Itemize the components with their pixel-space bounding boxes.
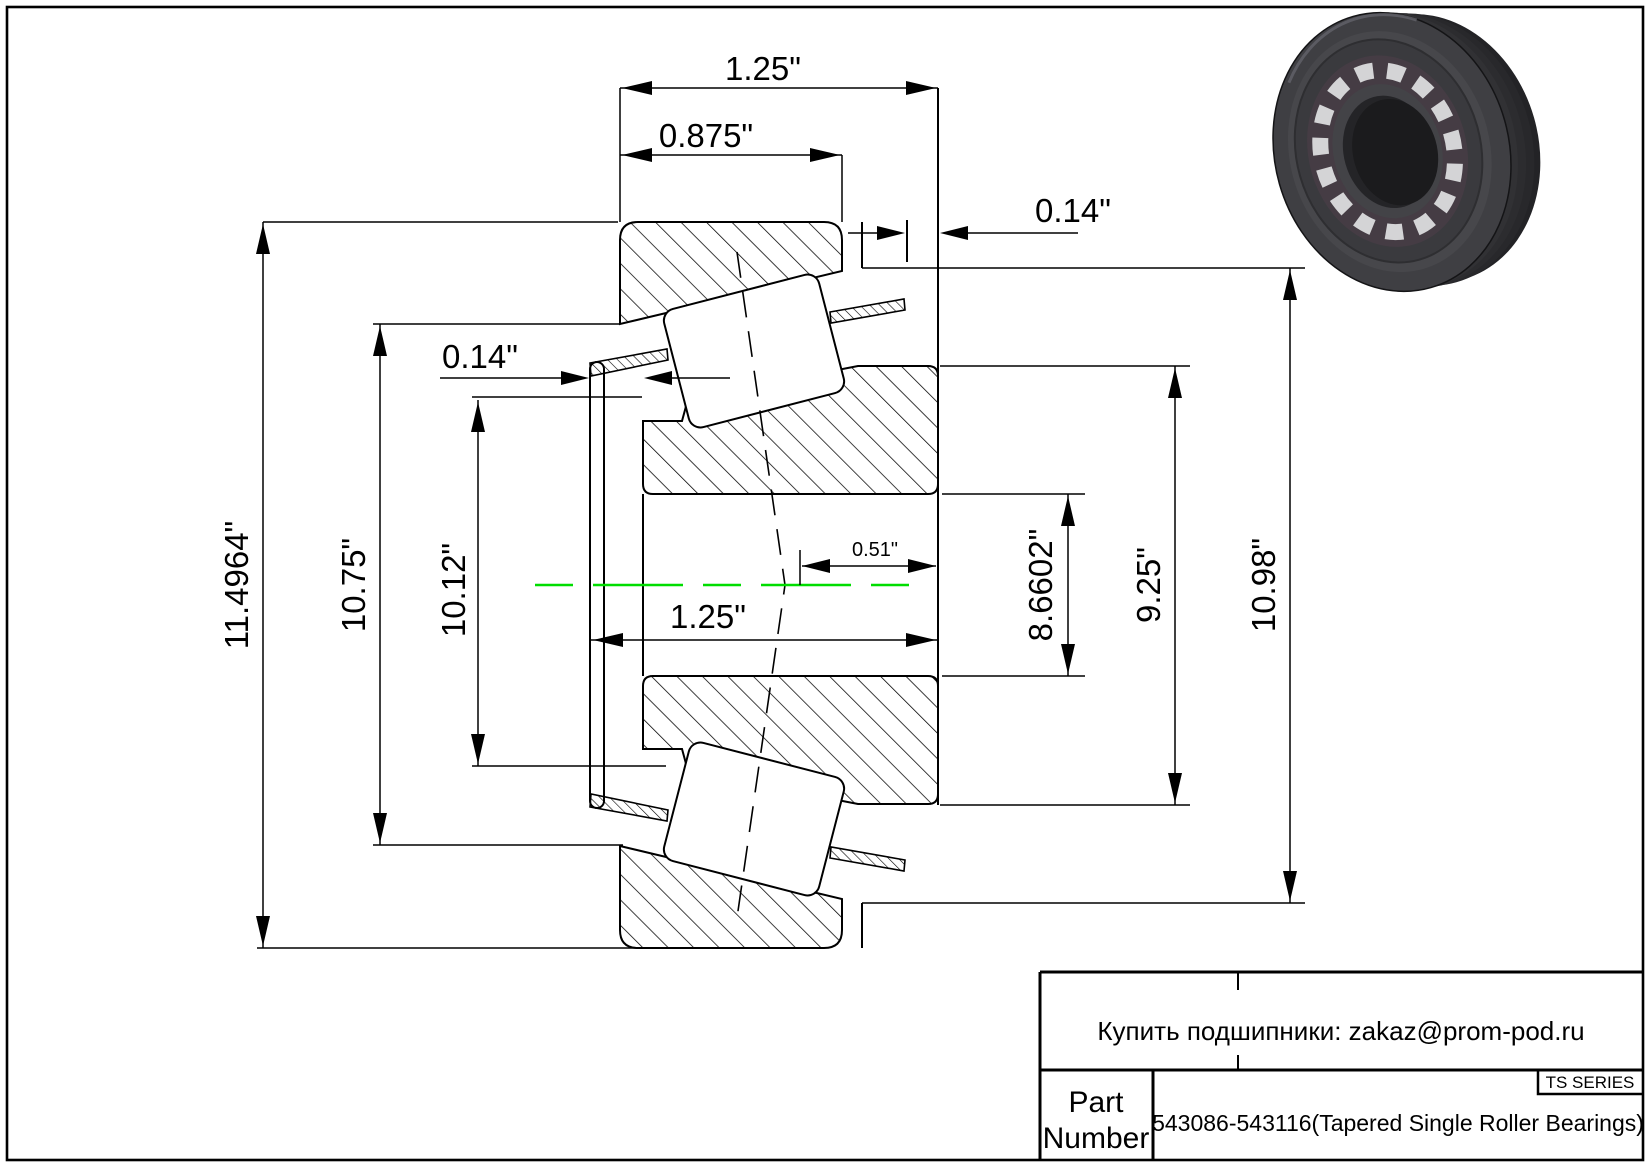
dim-label-effective-center: 0.51" (852, 539, 898, 561)
dim-label-rib-od: 10.12" (435, 543, 472, 637)
dim-label-flange-od: 11.4964" (218, 521, 255, 650)
dim-label-offset-right: 0.14" (1035, 192, 1111, 229)
drawing-page: 1.25" 0.875" 0.14" 0.14" 0.51" 1.25" 11.… (0, 0, 1649, 1167)
part-label-line1: Part (1068, 1086, 1124, 1119)
title-block-text: Купить подшипники: zakaz@prom-pod.ru TS … (1043, 1016, 1644, 1155)
dim-label-cone-back-od: 9.25" (1130, 547, 1167, 623)
dim-label-cone-width: 1.25" (670, 598, 746, 635)
cage-strip-top-right (830, 299, 905, 323)
dim-label-cup-width: 0.875" (659, 117, 753, 154)
vendor-note: Купить подшипники: zakaz@prom-pod.ru (1097, 1016, 1584, 1046)
cage-strip-bottom-right (830, 847, 905, 871)
dim-label-cup-od: 10.98" (1245, 538, 1282, 632)
cage-strip-bottom-left (590, 794, 668, 821)
dim-label-overall-width: 1.25" (725, 50, 801, 87)
dim-label-bore: 8.6602" (1022, 529, 1059, 642)
bearing-drawing-canvas: 1.25" 0.875" 0.14" 0.14" 0.51" 1.25" 11.… (0, 0, 1649, 1167)
part-label-line2: Number (1043, 1122, 1150, 1155)
part-number-value: 543086-543116(Tapered Single Roller Bear… (1152, 1110, 1644, 1136)
dim-label-offset-left: 0.14" (442, 338, 518, 375)
series-label: TS SERIES (1546, 1073, 1635, 1092)
cage-strip-top-left (590, 349, 668, 376)
dim-label-cup-front-od: 10.75" (335, 538, 372, 632)
